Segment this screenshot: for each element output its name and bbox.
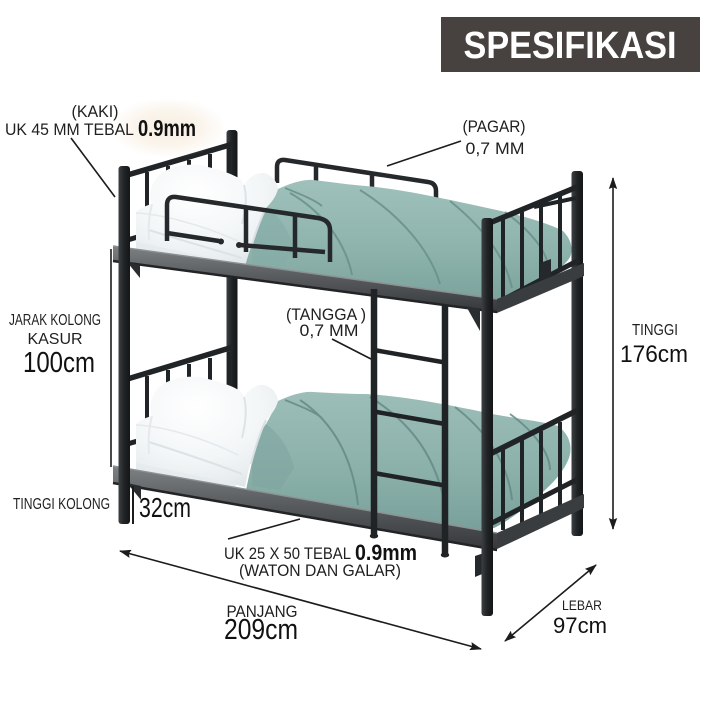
svg-text:UK 45 MM TEBAL: UK 45 MM TEBAL bbox=[5, 120, 134, 139]
svg-text:0.9mm: 0.9mm bbox=[138, 115, 196, 141]
svg-text:SPESIFIKASI: SPESIFIKASI bbox=[464, 25, 677, 67]
svg-text:0,7 MM: 0,7 MM bbox=[466, 139, 525, 158]
svg-text:100cm: 100cm bbox=[23, 347, 95, 379]
svg-text:(WATON DAN GALAR): (WATON DAN GALAR) bbox=[239, 561, 401, 580]
svg-text:209cm: 209cm bbox=[224, 614, 298, 646]
svg-text:TINGGI: TINGGI bbox=[632, 322, 678, 339]
svg-text:TINGGI KOLONG: TINGGI KOLONG bbox=[13, 496, 110, 513]
svg-text:176cm: 176cm bbox=[620, 341, 688, 368]
svg-text:0,7 MM: 0,7 MM bbox=[300, 321, 359, 340]
svg-text:32cm: 32cm bbox=[139, 492, 191, 523]
svg-text:JARAK KOLONG: JARAK KOLONG bbox=[9, 312, 101, 329]
svg-text:97cm: 97cm bbox=[553, 613, 607, 638]
svg-text:LEBAR: LEBAR bbox=[562, 597, 602, 613]
svg-text:(PAGAR): (PAGAR) bbox=[463, 117, 526, 136]
svg-text:(KAKI): (KAKI) bbox=[72, 102, 119, 121]
svg-text:KASUR: KASUR bbox=[27, 331, 82, 348]
